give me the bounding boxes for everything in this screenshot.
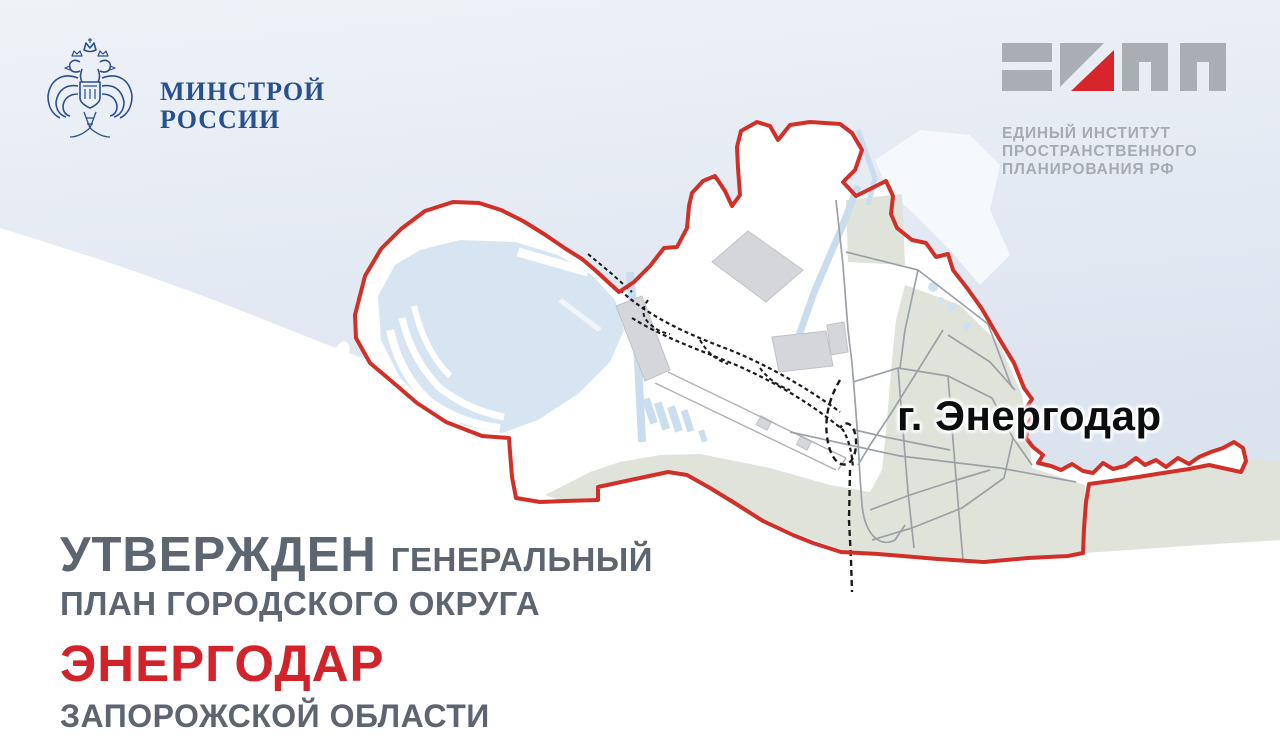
title-line-2: ПЛАН ГОРОДСКОГО ОКРУГА bbox=[60, 585, 653, 623]
title-city-name: ЭНЕРГОДАР bbox=[60, 638, 653, 689]
title-general: ГЕНЕРАЛЬНЫЙ bbox=[391, 541, 653, 579]
eipp-line2: ПРОСТРАНСТВЕННОГО bbox=[1002, 143, 1226, 161]
eipp-line3: ПЛАНИРОВАНИЯ РФ bbox=[1002, 161, 1226, 179]
announcement-title: УТВЕРЖДЕН ГЕНЕРАЛЬНЫЙ ПЛАН ГОРОДСКОГО ОК… bbox=[60, 531, 653, 735]
eipp-line1: ЕДИНЫЙ ИНСТИТУТ bbox=[1002, 125, 1226, 143]
eipp-wordmark: ЕДИНЫЙ ИНСТИТУТ ПРОСТРАНСТВЕННОГО ПЛАНИР… bbox=[1002, 125, 1226, 179]
town-building bbox=[827, 322, 848, 355]
title-line-1: УТВЕРЖДЕН ГЕНЕРАЛЬНЫЙ bbox=[60, 531, 653, 580]
minstroy-logo: МИНСТРОЙ РОССИИ bbox=[42, 36, 325, 148]
double-headed-eagle-icon bbox=[42, 36, 138, 148]
city-map-label: г. Энергодар bbox=[897, 392, 1162, 440]
small-islands bbox=[331, 339, 353, 405]
title-approved: УТВЕРЖДЕН bbox=[60, 531, 377, 580]
minstroy-wordmark: МИНСТРОЙ РОССИИ bbox=[160, 78, 325, 148]
plant-building-south bbox=[772, 331, 833, 372]
minstroy-line1: МИНСТРОЙ bbox=[160, 78, 325, 106]
minstroy-line2: РОССИИ bbox=[160, 106, 325, 134]
slide: { "minstroy_logo": { "emblem_icon": "dou… bbox=[0, 0, 1280, 755]
eipp-logomark-icon bbox=[1002, 42, 1226, 92]
eipp-logo: ЕДИНЫЙ ИНСТИТУТ ПРОСТРАНСТВЕННОГО ПЛАНИР… bbox=[1002, 42, 1226, 179]
title-region: ЗАПОРОЖСКОЙ ОБЛАСТИ bbox=[60, 698, 653, 735]
